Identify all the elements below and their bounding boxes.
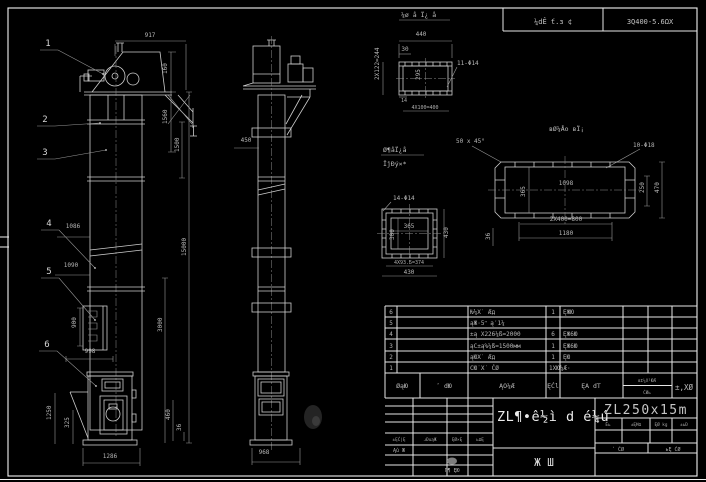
header-cell-mid: ¼dÊ ť.з ¢ bbox=[534, 17, 572, 26]
detail-c-title1: Ø¶åÏ¿å bbox=[383, 145, 407, 154]
row-material: ĘЖЮ bbox=[563, 309, 574, 316]
chamfer-note: 50 x 45° bbox=[456, 138, 485, 145]
dim-968: 968 bbox=[259, 449, 270, 456]
row-name: Ƕ¼X˙ Æд bbox=[470, 309, 496, 316]
elevator-boot bbox=[70, 372, 137, 445]
header-cell-right: 3Q400-5.6ΩX bbox=[627, 18, 674, 26]
dim-1286: 1286 bbox=[103, 453, 118, 460]
info-cell: ĘØ kg bbox=[655, 421, 668, 428]
row-qty: 1XЮ¼Æ· bbox=[549, 365, 571, 372]
row-no: 5 bbox=[389, 320, 393, 327]
detail-a-title: ¼ø å Ï¿ å bbox=[401, 10, 436, 19]
holes-14-d14: 14-Φ14 bbox=[393, 195, 415, 202]
dim-1086: 1086 bbox=[66, 223, 81, 230]
balloon-6: 6 bbox=[44, 340, 49, 350]
row-no: 3 bbox=[389, 343, 393, 350]
dim-160: 160 bbox=[162, 63, 169, 74]
rev-bottom-label: Ґ¶ ĘЮ bbox=[444, 467, 459, 474]
dim-325: 325 bbox=[64, 417, 71, 428]
dim-4x93: 4X93.5=374 bbox=[394, 260, 424, 266]
row-material: ĘЖ6Ю bbox=[563, 331, 578, 338]
dim-900: 900 bbox=[71, 317, 78, 328]
dim-36: 36 bbox=[176, 423, 183, 431]
dim-365c: 365 bbox=[404, 223, 415, 230]
product-title: ZL¶•ê½ì d é¼ú bbox=[497, 409, 609, 425]
table-rows: 6 Ƕ¼X˙ Æд 1 ĘЖЮ 5 ąЖ·5ʺ ą′1¼ 4 ±ą X226¼ß… bbox=[389, 309, 578, 372]
sheets-page-label: ьĘ ĆØ bbox=[665, 446, 680, 453]
dim-470: 470 bbox=[654, 182, 661, 193]
parts-table: 6 Ƕ¼X˙ Æд 1 ĘЖЮ 5 ąЖ·5ʺ ą′1¼ 4 ±ą X226¼ß… bbox=[385, 306, 697, 398]
info-cell: ±ьĐ bbox=[680, 422, 688, 428]
sheets-total-label: ʹ ĆØ bbox=[612, 446, 624, 453]
detail-c-title2: ÏĵÐý×* bbox=[383, 159, 407, 168]
dim-15000: 15000 bbox=[181, 238, 188, 256]
dim-1500: 1500 bbox=[174, 137, 181, 152]
signature-blob bbox=[447, 458, 457, 465]
footer-col-weight-top: вΣ¼X¹ЮÆ bbox=[638, 378, 657, 384]
footer-col-remark: ±,XØ bbox=[675, 383, 694, 392]
side-view: 450 968 bbox=[234, 36, 322, 465]
dim-917: 917 bbox=[145, 32, 156, 39]
side-dimensions: 450 968 bbox=[234, 137, 300, 465]
detail-b-title: вØ¼Åо вЇ¡ bbox=[549, 124, 584, 133]
detail-square-flange: Ø¶åÏ¿å ÏĵÐý×* 14-Φ14 365 300 430 4X93.5=… bbox=[377, 145, 450, 276]
balloon-5: 5 bbox=[46, 267, 51, 277]
rev-header-cell: ɹÐuąЖ bbox=[424, 437, 437, 443]
dim-300: 300 bbox=[389, 229, 396, 240]
dim-36b: 36 bbox=[485, 232, 492, 240]
balloon-4: 4 bbox=[46, 219, 51, 229]
header-bar: ¼dÊ ť.з ¢ 3Q400-5.6ΩX bbox=[503, 8, 697, 31]
row-name: ąЖ·5ʺ ą′1¼ bbox=[470, 320, 505, 327]
footer-col-weight-bottom: ĆØь bbox=[643, 389, 651, 396]
footer-col-name: ĄO¼Æ bbox=[499, 382, 515, 390]
dim-4x100: 4X100=400 bbox=[411, 105, 438, 111]
table-footer: ØąЮ ʹ dЮ ĄO¼Æ ĘĆl ĘA dT вΣ¼X¹ЮÆ ĆØь ±,XØ bbox=[396, 378, 693, 396]
balloon-2: 2 bbox=[42, 115, 47, 125]
sheet-type-label: Ж Ш bbox=[534, 456, 554, 469]
row-no: 1 bbox=[389, 365, 393, 372]
footer-col-material: ĘA dT bbox=[581, 382, 601, 390]
row-no: 4 bbox=[389, 331, 393, 338]
rev-header-cell: ьΩĘ bbox=[476, 437, 484, 443]
dim-2x122: 2X122=244 bbox=[374, 47, 381, 80]
row-qty: 1 bbox=[551, 343, 555, 350]
rev-header-cell: ĘØ×Ę bbox=[452, 436, 463, 443]
cad-sheet: ¼dÊ ť.з ¢ 3Q400-5.6ΩX bbox=[0, 0, 706, 482]
dim-30: 30 bbox=[401, 46, 409, 53]
model-number: ZL250x15m bbox=[604, 403, 688, 418]
row-name: ±ą X226¼ß=2000 bbox=[470, 331, 521, 338]
dim-250: 250 bbox=[639, 182, 646, 193]
holes-11-d14: 11-Φ14 bbox=[457, 60, 479, 67]
row-material: ĘЖ6Ю bbox=[563, 343, 578, 350]
footer-col-no: ØąЮ bbox=[396, 382, 408, 390]
title-block: ±ĘĆ|Ę ɹÐuąЖ ĘØ×Ę ьΩĘ Ąû Ж Ґ¶ ĘЮ ZL¶•ê½ì … bbox=[385, 398, 697, 476]
row-qty: 6 bbox=[551, 331, 555, 338]
dim-1098: 1098 bbox=[559, 180, 574, 187]
front-view: 1 2 3 4 5 6 917 160 1560 1500 15000 3000 bbox=[37, 32, 197, 466]
dim-450: 450 bbox=[241, 137, 252, 144]
row-no: 6 bbox=[389, 309, 393, 316]
dim-430r: 430 bbox=[443, 227, 450, 238]
row-qty: 1 bbox=[551, 309, 555, 316]
rev-header-cell: ±ĘĆ|Ę bbox=[393, 436, 406, 443]
dim-1090: 1090 bbox=[64, 262, 79, 269]
row-name: ąC±ą%¼ß=1500мм bbox=[470, 343, 521, 350]
footer-col-code: ʹ dЮ bbox=[436, 382, 452, 390]
row-name: ąЮX˙ Æд bbox=[470, 354, 496, 361]
row-name: CЮ˙X˙ ĆØ bbox=[470, 365, 499, 372]
detail-outlet-flange: вØ¼Åо вЇ¡ 50 x 45° 10-Φ18 1098 365 250 4… bbox=[456, 124, 665, 246]
holes-10-d18: 10-Φ18 bbox=[633, 142, 655, 149]
dim-2x400: 2X400=800 bbox=[550, 216, 583, 223]
dim-1180: 1180 bbox=[559, 230, 574, 237]
detail-top-flange: ¼ø å Ï¿ å 440 30 295 2X122=244 11-Φ14 14… bbox=[374, 10, 479, 111]
dim-430b: 430 bbox=[404, 269, 415, 276]
row-material: ĘЮ bbox=[563, 354, 571, 361]
balloon-3: 3 bbox=[42, 148, 47, 158]
stamp-blob bbox=[304, 405, 322, 429]
row-qty: 1 bbox=[551, 354, 555, 361]
steel-symbol bbox=[190, 126, 197, 136]
dim-14: 14 bbox=[401, 98, 407, 104]
dim-295: 295 bbox=[415, 69, 422, 80]
footer-col-qty: ĘĆl bbox=[547, 381, 559, 390]
dim-440: 440 bbox=[416, 31, 427, 38]
info-cell: ±ĘĦΩ bbox=[631, 422, 642, 428]
elevator-casing bbox=[83, 46, 145, 436]
dim-3000: 3000 bbox=[157, 317, 164, 332]
dim-1250: 1250 bbox=[46, 405, 53, 420]
balloon-1: 1 bbox=[45, 39, 50, 49]
dim-1560: 1560 bbox=[162, 109, 169, 124]
dim-460: 460 bbox=[165, 409, 172, 420]
dim-998: 998 bbox=[85, 348, 96, 355]
dim-365b: 365 bbox=[520, 186, 527, 197]
row-no: 2 bbox=[389, 354, 393, 361]
rev-mark-label: Ąû Ж bbox=[393, 447, 405, 454]
drawing-canvas[interactable]: ¼dÊ ť.з ¢ 3Q400-5.6ΩX bbox=[0, 0, 706, 482]
